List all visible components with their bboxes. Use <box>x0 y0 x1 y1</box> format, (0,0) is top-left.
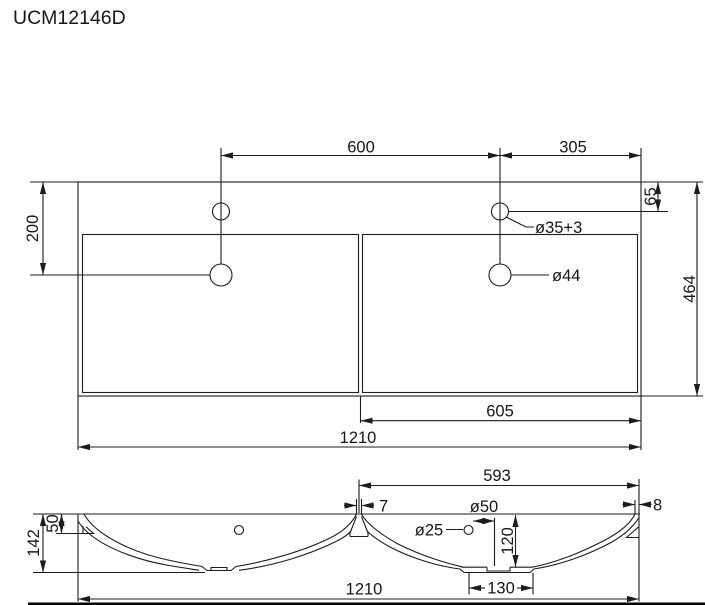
right-drain-hole <box>489 264 511 286</box>
dim-text-305: 305 <box>559 139 587 157</box>
right-drain-hole-section <box>487 567 510 571</box>
dim-text-1210-section: 1210 <box>346 581 383 599</box>
dim-text-200: 200 <box>24 215 42 243</box>
dim-text-593: 593 <box>483 467 511 485</box>
dim-text-130: 130 <box>487 580 515 598</box>
left-basin-outer-curve-b <box>239 531 351 570</box>
sink-technical-drawing: UCM12146D 600 305 200 <box>0 0 705 605</box>
dim-text-464: 464 <box>681 275 699 303</box>
section-outline <box>33 479 640 602</box>
countertop-outer-rect <box>78 182 641 396</box>
left-overflow-hole <box>235 526 244 535</box>
top-view-extension-lines <box>30 148 703 450</box>
dim-text-142: 142 <box>25 529 43 557</box>
section-extension-lines <box>33 480 635 595</box>
dim-text-7: 7 <box>379 498 388 516</box>
dim-text-50: 50 <box>44 514 62 532</box>
top-view-dimension-text: 600 305 200 65 464 ø35+3 ø44 605 1210 <box>24 139 699 448</box>
technical-drawing-page: UCM12146D 600 305 200 <box>0 0 705 605</box>
top-view-outline <box>78 182 641 396</box>
dim-text-600: 600 <box>347 139 375 157</box>
left-basin-inner-curve <box>84 514 357 571</box>
dim-text-120: 120 <box>499 527 517 555</box>
top-view-dimension-lines <box>43 156 697 448</box>
dim-text-605: 605 <box>486 403 514 421</box>
left-drain-hole <box>210 264 232 286</box>
drawing-title: UCM12146D <box>13 7 126 29</box>
dim-text-8: 8 <box>653 497 662 515</box>
label-drain-hole: ø44 <box>552 267 580 285</box>
label-faucet-hole: ø35+3 <box>535 219 582 237</box>
dim-text-1210-top: 1210 <box>340 429 377 447</box>
right-wall-foot <box>627 527 639 538</box>
dim-text-65: 65 <box>642 187 660 205</box>
right-overflow-hole <box>464 526 473 535</box>
label-overflow-section: ø25 <box>415 522 443 540</box>
leader-faucet-hole <box>506 217 534 227</box>
section-dimension-text: 593 7 8 ø50 ø25 120 130 1210 142 50 <box>25 467 662 599</box>
label-drain-section: ø50 <box>470 498 498 516</box>
